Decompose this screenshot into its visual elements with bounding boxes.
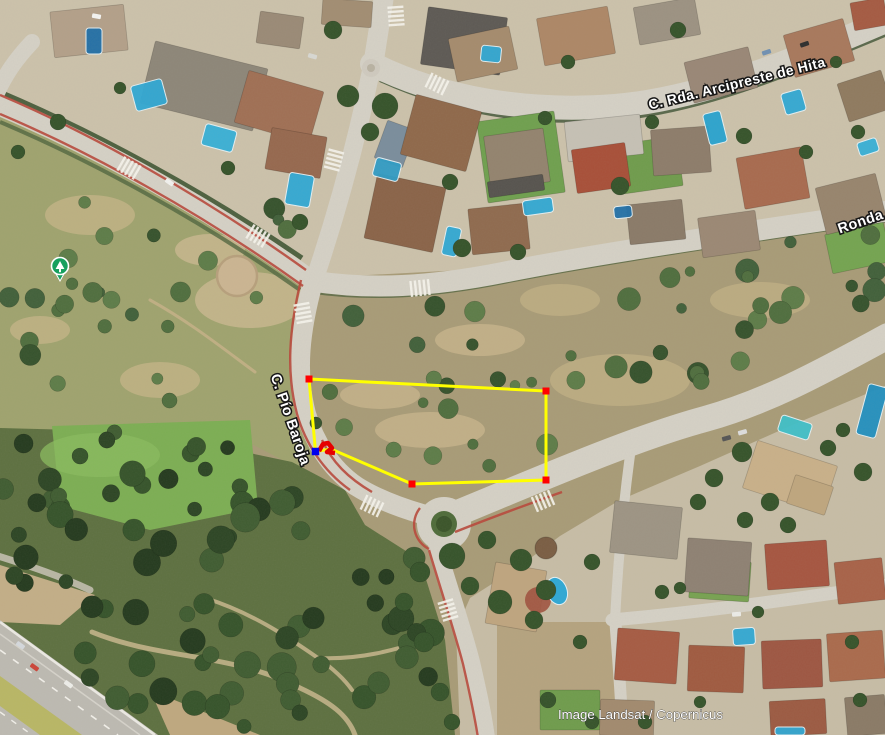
image-grain [0,0,885,735]
vertex-handle[interactable] [409,481,416,488]
vertex-handle[interactable] [543,388,550,395]
vertex-handle[interactable] [306,376,313,383]
selected-vertex-handle[interactable] [312,448,320,456]
vertex-handle[interactable] [543,477,550,484]
attribution-text: Image Landsat / Copernicus [558,707,723,722]
satellite-map[interactable]: C. Rda. Arcipreste de HitaRondaC. Pío Ba… [0,0,885,735]
satellite-map-view[interactable]: C. Rda. Arcipreste de HitaRondaC. Pío Ba… [0,0,885,735]
tree-icon-trunk [59,269,61,272]
